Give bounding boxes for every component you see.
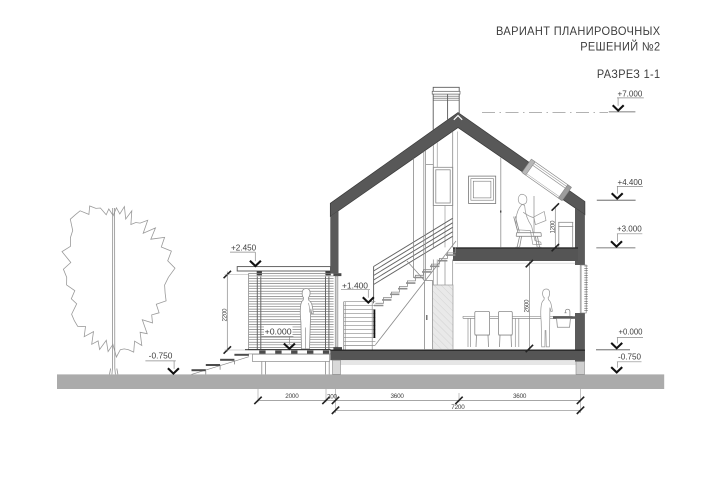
svg-text:200: 200 [327, 394, 337, 401]
svg-text:+0.000: +0.000 [619, 328, 644, 337]
svg-text:РАЗРЕЗ 1-1: РАЗРЕЗ 1-1 [597, 67, 661, 81]
svg-text:РЕШЕНИЙ №2: РЕШЕНИЙ №2 [580, 38, 660, 53]
svg-text:+7.000: +7.000 [618, 89, 643, 98]
svg-text:+3.000: +3.000 [617, 225, 642, 234]
svg-text:7200: 7200 [451, 404, 465, 411]
svg-text:2200: 2200 [222, 308, 229, 321]
svg-text:3600: 3600 [390, 393, 404, 400]
svg-text:ВАРИАНТ ПЛАНИРОВОЧНЫХ: ВАРИАНТ ПЛАНИРОВОЧНЫХ [496, 24, 661, 38]
svg-text:-0.750: -0.750 [618, 353, 642, 362]
svg-text:+4.400: +4.400 [618, 178, 643, 187]
svg-text:+1.400: +1.400 [342, 282, 369, 291]
svg-text:1200: 1200 [550, 220, 557, 233]
svg-text:2600: 2600 [524, 299, 531, 312]
svg-text:+0.000: +0.000 [265, 328, 293, 337]
svg-text:-0.750: -0.750 [149, 352, 173, 361]
svg-text:3600: 3600 [513, 393, 527, 400]
svg-text:+2.450: +2.450 [231, 244, 257, 253]
svg-text:2000: 2000 [285, 393, 299, 400]
